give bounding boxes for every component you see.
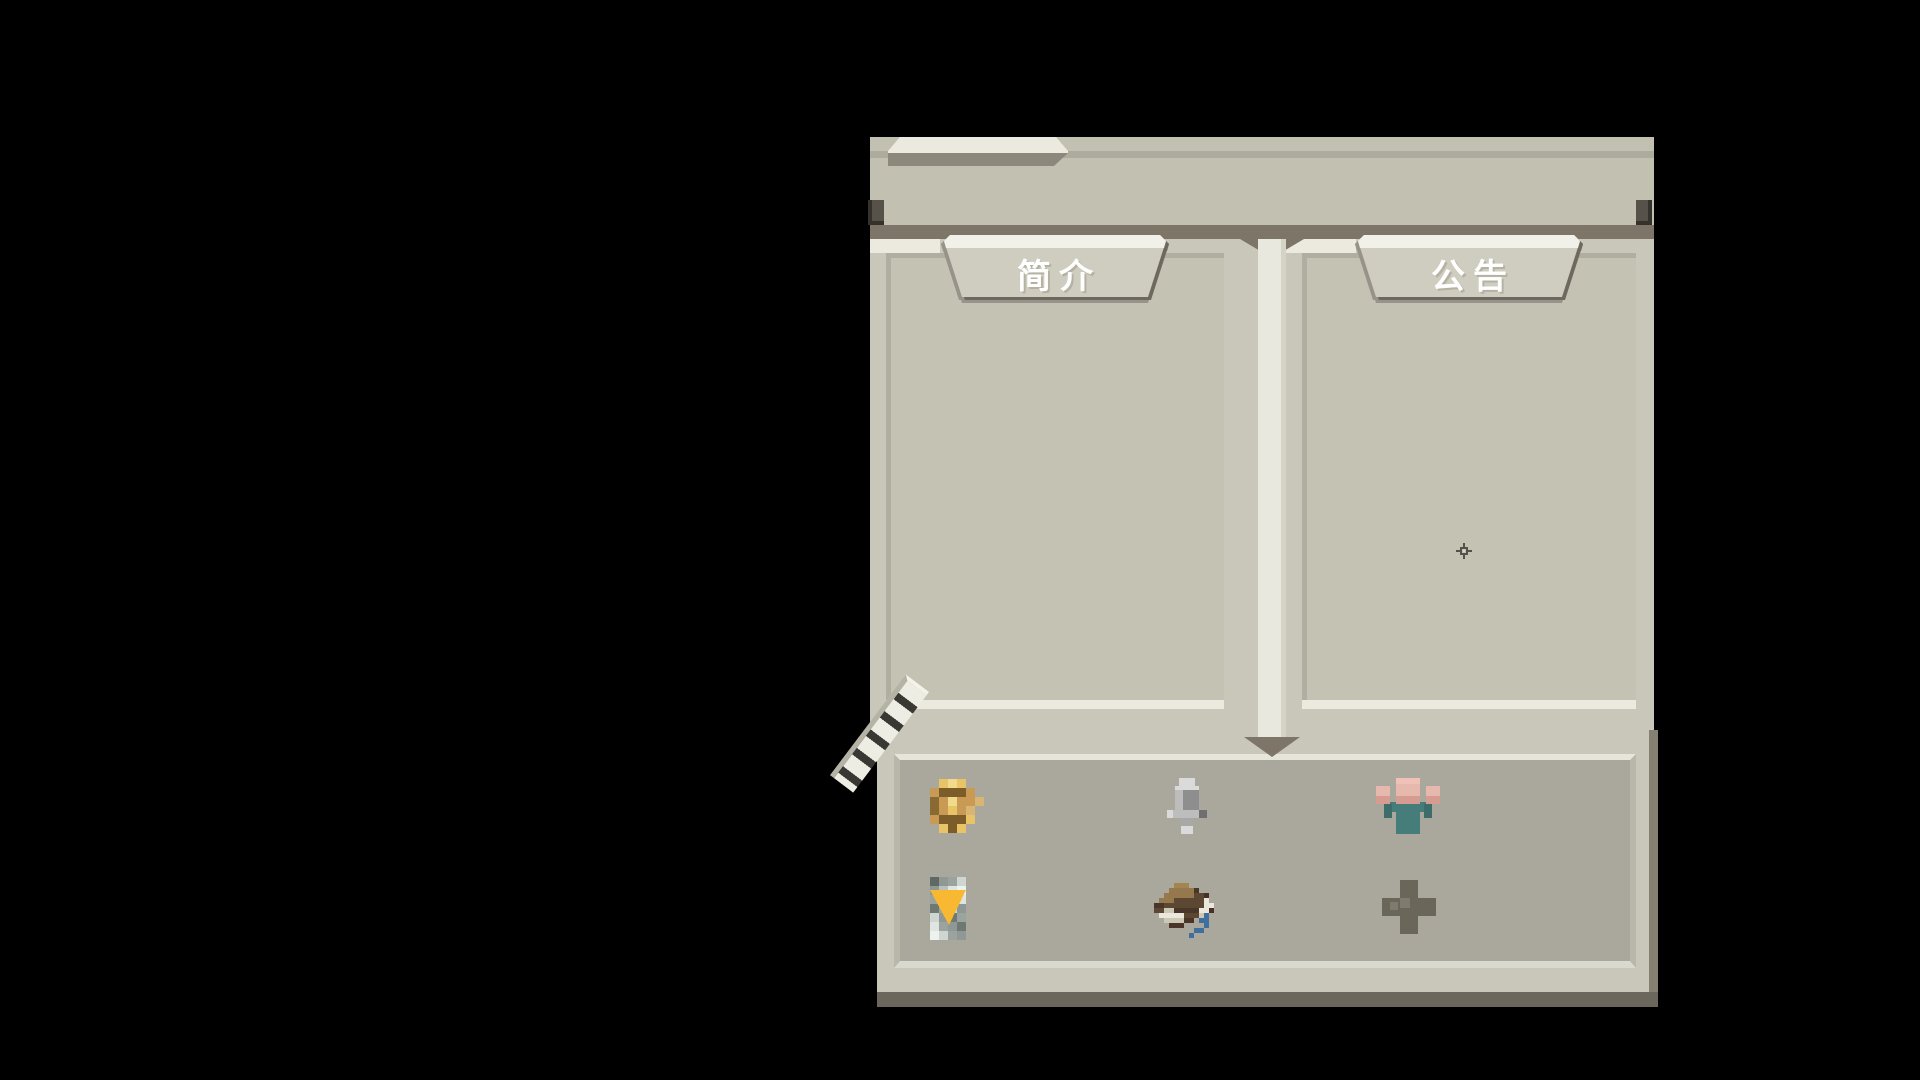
tab-intro-highlight bbox=[944, 235, 1166, 248]
icon-tray bbox=[894, 754, 1636, 968]
banner-top-tab bbox=[888, 137, 1068, 153]
center-divider bbox=[1258, 239, 1286, 745]
banner-left-notch bbox=[868, 200, 884, 225]
bottom-shadow-band bbox=[877, 992, 1658, 1007]
filter-triangle-icon[interactable] bbox=[930, 877, 966, 940]
microphone-icon[interactable] bbox=[1167, 778, 1207, 834]
tab-intro[interactable]: 简介 bbox=[944, 235, 1166, 297]
hat-icon[interactable] bbox=[1154, 883, 1214, 938]
tab-intro-label: 简介 bbox=[944, 249, 1166, 298]
intro-pane bbox=[886, 253, 1224, 700]
game-screen: 简介 公告 bbox=[0, 0, 1920, 1080]
villager-icon[interactable] bbox=[1376, 778, 1440, 834]
info-dialog: 简介 公告 bbox=[868, 137, 1658, 1007]
tab-announcement-highlight bbox=[1358, 235, 1580, 248]
bottom-right-edge bbox=[1649, 730, 1658, 1007]
bottom-section bbox=[877, 730, 1658, 1007]
intro-pane-bottom-highlight bbox=[886, 700, 1224, 709]
sparkle-icon bbox=[1456, 543, 1472, 559]
tab-announcement[interactable]: 公告 bbox=[1358, 235, 1580, 297]
banner-right-notch bbox=[1636, 200, 1652, 225]
left-pane-corner-highlight bbox=[870, 239, 940, 253]
tab-announcement-label: 公告 bbox=[1358, 249, 1580, 298]
center-divider-notch bbox=[1244, 737, 1300, 757]
banner-top-tab-shadow bbox=[888, 153, 1068, 166]
announcement-pane-bottom-highlight bbox=[1302, 700, 1636, 709]
announcement-pane bbox=[1302, 253, 1636, 700]
plus-icon[interactable] bbox=[1382, 880, 1436, 934]
coin-icon[interactable] bbox=[930, 779, 984, 833]
